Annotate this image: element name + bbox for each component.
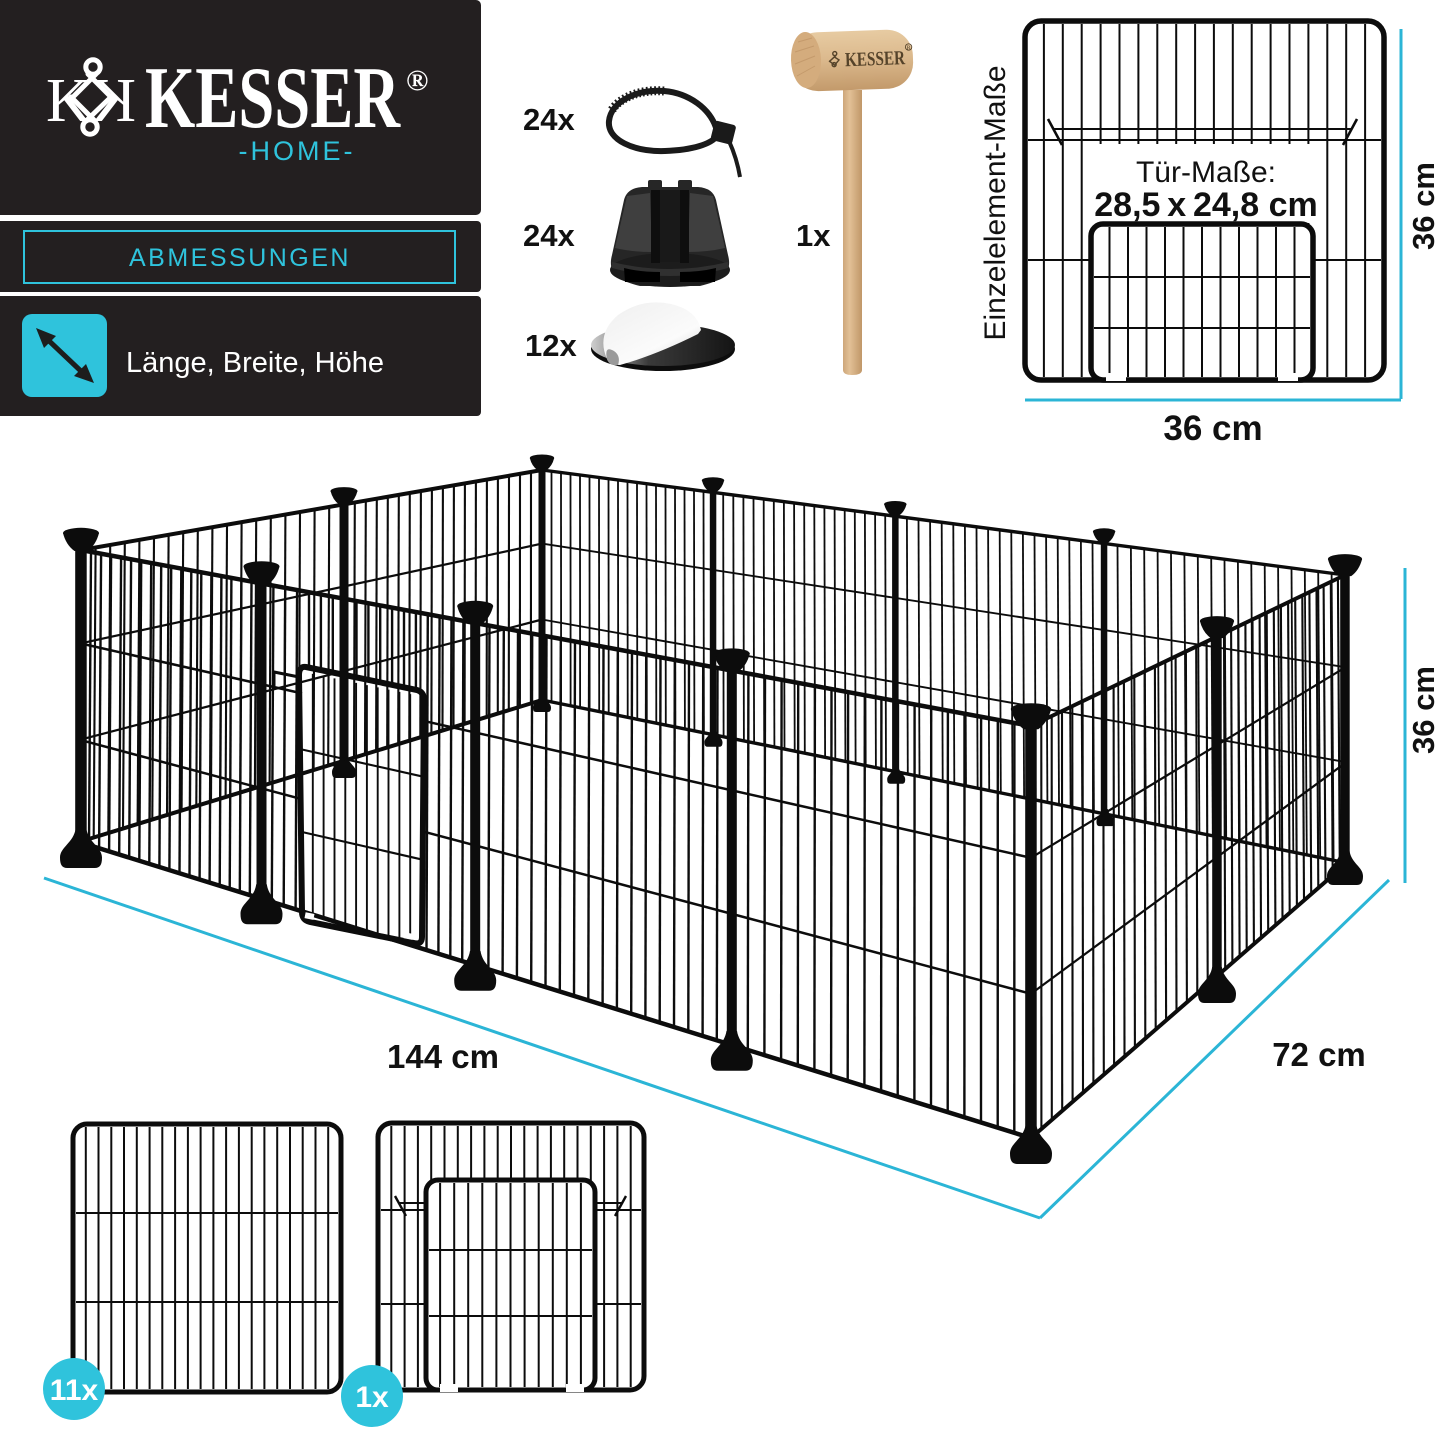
svg-text:36 cm: 36 cm <box>1163 409 1262 448</box>
svg-text:KESSER: KESSER <box>845 47 906 71</box>
svg-text:Einzelelement-Maße: Einzelelement-Maße <box>979 65 1012 340</box>
svg-text:K: K <box>91 67 136 135</box>
svg-text:®: ® <box>406 64 428 97</box>
svg-text:24x: 24x <box>523 102 575 137</box>
svg-text:Länge, Breite, Höhe: Länge, Breite, Höhe <box>126 347 384 379</box>
svg-text:1x: 1x <box>796 218 831 253</box>
svg-text:1x: 1x <box>355 1381 389 1414</box>
svg-text:28,5 x 24,8 cm: 28,5 x 24,8 cm <box>1094 186 1317 224</box>
svg-text:-HOME-: -HOME- <box>239 136 356 166</box>
svg-text:36 cm: 36 cm <box>1406 666 1441 754</box>
svg-text:11x: 11x <box>50 1374 99 1407</box>
svg-text:R: R <box>907 45 911 51</box>
svg-text:12x: 12x <box>525 328 577 363</box>
svg-text:KESSER: KESSER <box>145 50 401 147</box>
svg-text:24x: 24x <box>523 218 575 253</box>
svg-text:36 cm: 36 cm <box>1406 162 1441 250</box>
svg-text:72 cm: 72 cm <box>1272 1036 1366 1073</box>
svg-text:ABMESSUNGEN: ABMESSUNGEN <box>129 244 351 272</box>
svg-text:K: K <box>46 67 91 135</box>
svg-text:Tür-Maße:: Tür-Maße: <box>1136 156 1276 189</box>
svg-text:144 cm: 144 cm <box>387 1038 499 1075</box>
